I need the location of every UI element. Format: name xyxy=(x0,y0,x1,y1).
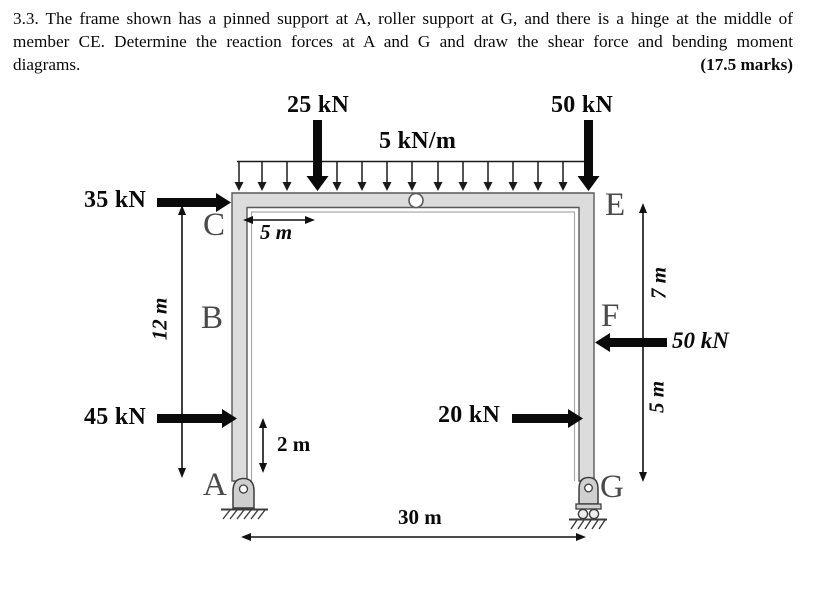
load-label-35kN: 35 kN xyxy=(84,187,146,214)
force-arrow-45kN-right xyxy=(157,409,237,428)
load-label-20kN: 20 kN xyxy=(438,402,500,429)
dim-label-5m-beam: 5 m xyxy=(260,220,292,245)
pinned-support-A xyxy=(221,479,268,520)
node-label-A: A xyxy=(203,469,227,502)
node-label-B: B xyxy=(201,302,223,335)
node-label-G: G xyxy=(600,471,624,504)
force-arrow-50kN-left xyxy=(595,333,667,352)
node-label-F: F xyxy=(601,300,619,333)
force-arrow-25kN-down xyxy=(307,120,329,191)
hinge-icon xyxy=(409,194,423,208)
force-arrow-20kN-right xyxy=(512,409,583,428)
load-label-45kN: 45 kN xyxy=(84,404,146,431)
load-label-udl: 5 kN/m xyxy=(379,128,456,155)
dim-label-30m: 30 m xyxy=(398,505,442,530)
load-label-50kN-top: 50 kN xyxy=(551,92,613,119)
node-label-C: C xyxy=(203,209,225,242)
node-label-E: E xyxy=(605,189,625,222)
load-label-25kN: 25 kN xyxy=(287,92,349,119)
distributed-load-arrows xyxy=(235,162,590,192)
dim-label-12m: 12 m xyxy=(148,298,173,341)
dim-label-5m-right: 5 m xyxy=(645,381,670,413)
load-label-50kN-right: 50 kN xyxy=(672,328,729,354)
dim-label-7m: 7 m xyxy=(647,267,672,299)
dim-label-2m: 2 m xyxy=(277,432,310,457)
force-arrow-50kN-down xyxy=(578,120,600,191)
document-page: 3.3. The frame shown has a pinned suppor… xyxy=(0,0,821,599)
